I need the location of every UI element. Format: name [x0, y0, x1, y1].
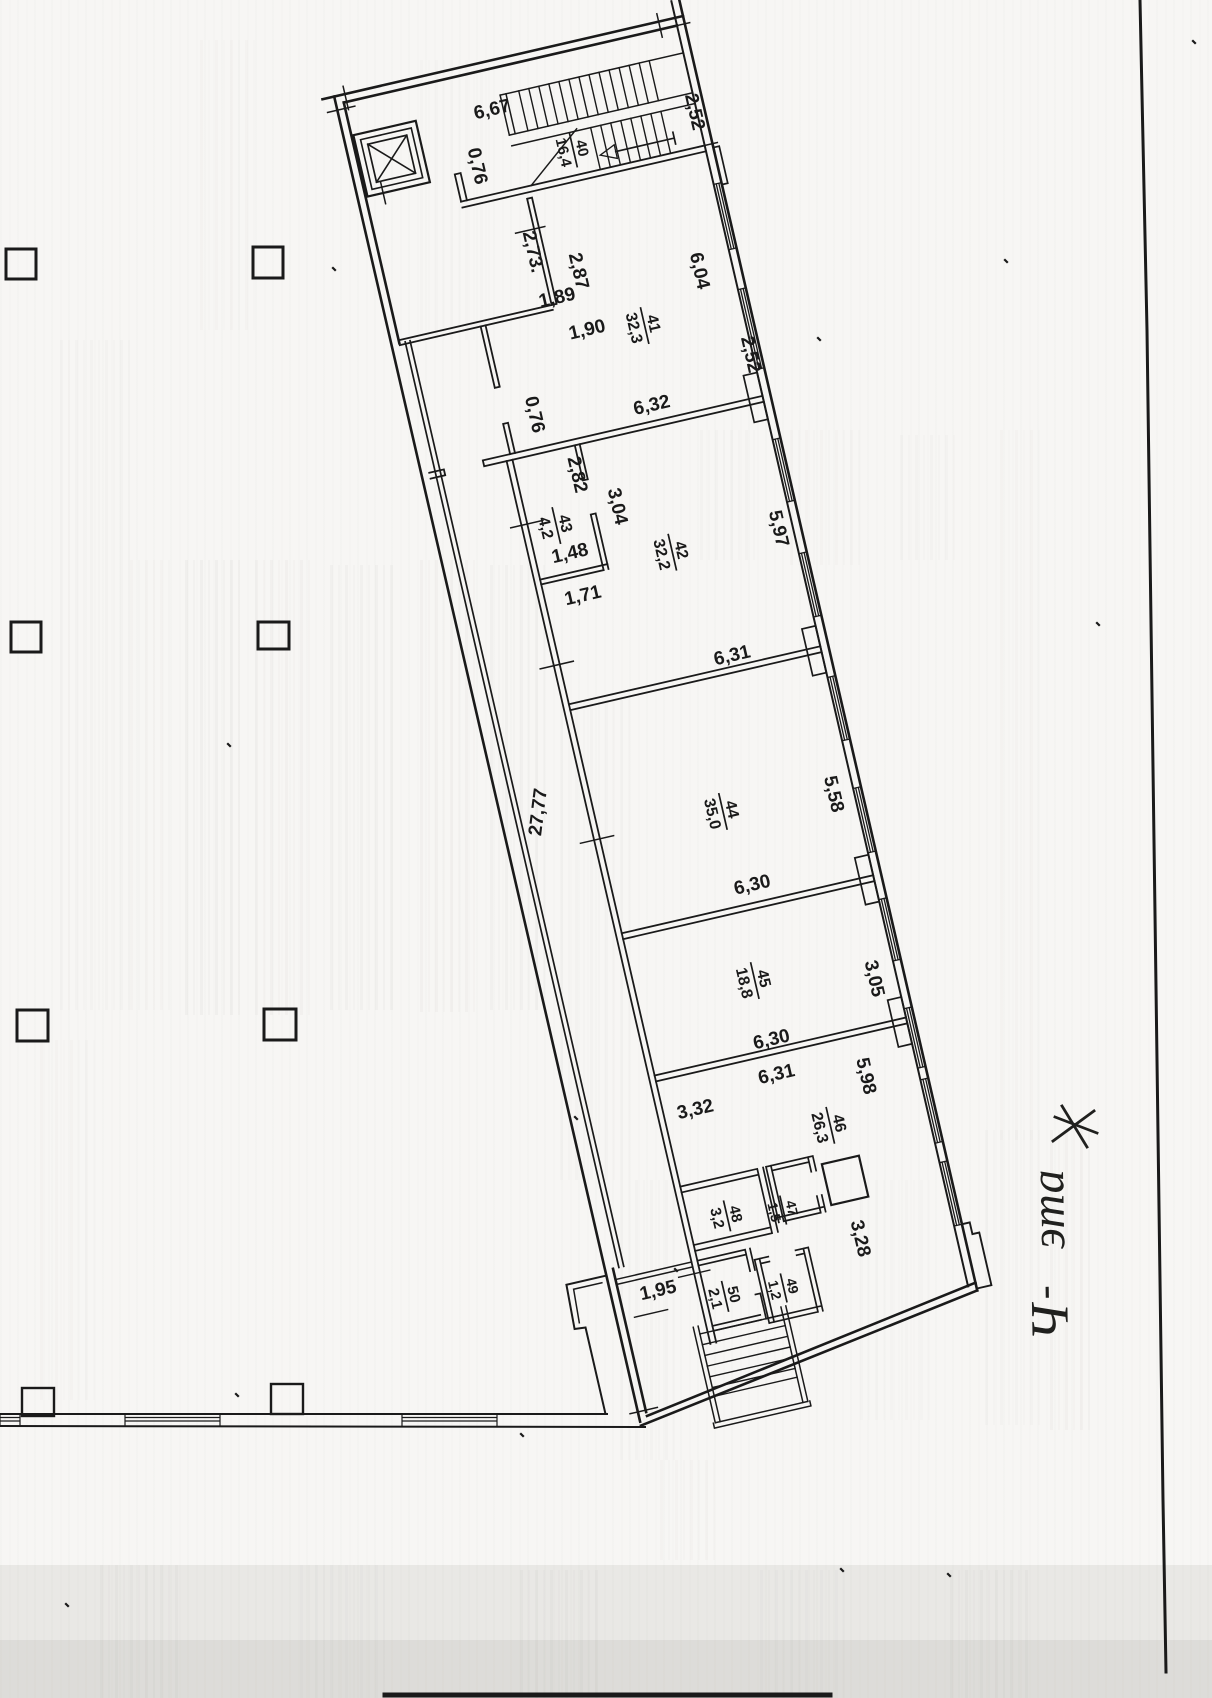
svg-text:6,31: 6,31: [756, 1060, 797, 1089]
svg-text:Ч: Ч: [1019, 1301, 1080, 1342]
svg-text:2,52: 2,52: [680, 92, 709, 133]
svg-text:1,95: 1,95: [638, 1276, 679, 1305]
svg-text:0,76: 0,76: [520, 394, 549, 435]
svg-text:6,30: 6,30: [751, 1025, 792, 1054]
svg-text:1,90: 1,90: [567, 316, 608, 345]
svg-text:-: -: [1021, 1285, 1067, 1300]
svg-text:3,2: 3,2: [706, 1206, 727, 1230]
svg-text:49: 49: [783, 1277, 802, 1296]
svg-text:5,98: 5,98: [851, 1056, 880, 1097]
svg-text:эта: эта: [1021, 1169, 1075, 1250]
svg-text:3,28: 3,28: [846, 1218, 875, 1259]
svg-text:1,71: 1,71: [562, 581, 603, 610]
svg-text:1,48: 1,48: [550, 539, 591, 568]
svg-text:1,5: 1,5: [764, 1201, 784, 1224]
svg-text:6,31: 6,31: [712, 641, 753, 670]
svg-text:3,05: 3,05: [860, 958, 889, 999]
svg-text:2,82: 2,82: [563, 454, 592, 495]
svg-text:27,77: 27,77: [525, 787, 552, 837]
svg-text:2,52: 2,52: [736, 334, 765, 375]
svg-text:3,32: 3,32: [675, 1095, 716, 1124]
svg-text:1,89: 1,89: [537, 284, 578, 313]
svg-text:2,73.: 2,73.: [518, 229, 548, 275]
svg-text:6,32: 6,32: [631, 391, 672, 420]
svg-text:5,97: 5,97: [764, 508, 793, 549]
svg-text:3,04: 3,04: [603, 486, 632, 527]
svg-text:4,2: 4,2: [534, 515, 556, 541]
svg-text:5,58: 5,58: [819, 774, 848, 815]
svg-text:6,04: 6,04: [685, 250, 714, 291]
svg-text:6,30: 6,30: [732, 871, 773, 900]
svg-text:0,76: 0,76: [463, 146, 492, 187]
svg-text:47: 47: [782, 1199, 801, 1218]
